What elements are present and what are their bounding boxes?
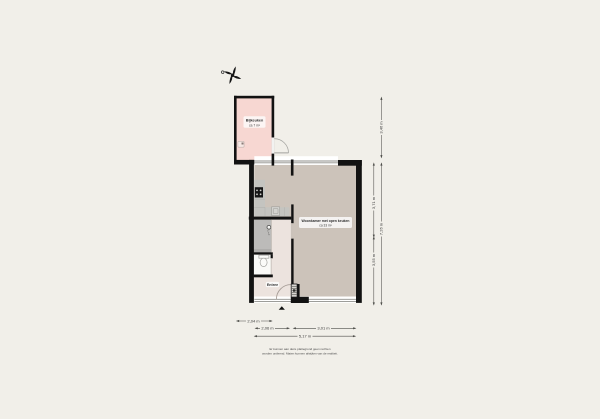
svg-text:3,71 m: 3,71 m — [371, 196, 376, 209]
svg-text:Entree: Entree — [267, 283, 278, 287]
svg-text:5,17 m: 5,17 m — [299, 334, 312, 339]
svg-text:2,04 m: 2,04 m — [247, 318, 260, 323]
svg-text:2,06 m: 2,06 m — [261, 326, 274, 331]
svg-text:Woonkamer met open keuken: Woonkamer met open keuken — [302, 219, 350, 223]
svg-text:7,26 m: 7,26 m — [378, 222, 383, 235]
svg-text:ca 7 m²: ca 7 m² — [249, 123, 261, 127]
svg-text:3,46 m: 3,46 m — [378, 121, 383, 134]
svg-text:Bijkeuken: Bijkeuken — [246, 119, 264, 123]
svg-text:worden ontleend. Maten kunnen: worden ontleend. Maten kunnen afwijken v… — [262, 351, 338, 355]
svg-text:3,55 m: 3,55 m — [371, 253, 376, 266]
svg-text:ca 33 m²: ca 33 m² — [319, 224, 331, 228]
svg-text:3,01 m: 3,01 m — [317, 326, 330, 331]
